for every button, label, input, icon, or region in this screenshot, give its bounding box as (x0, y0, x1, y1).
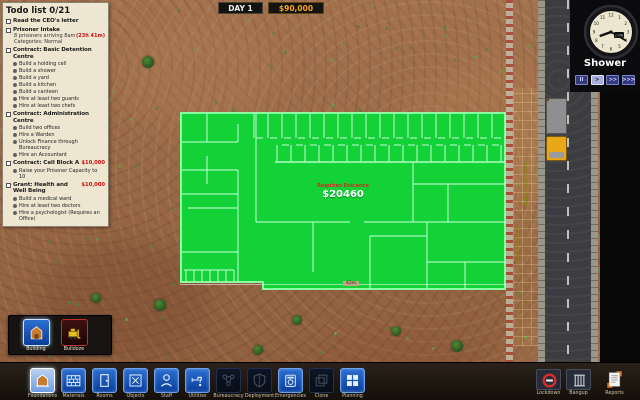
svg-text:8: 8 (595, 38, 598, 43)
todo-checkbox[interactable] (6, 183, 11, 188)
grass-tuft (215, 101, 218, 104)
tree (253, 345, 263, 355)
todo-item-label: Grant: Health and Well Being (13, 182, 81, 195)
tree (292, 315, 302, 325)
map-button-bangup[interactable] (566, 369, 591, 390)
todo-checkbox[interactable] (6, 112, 11, 117)
todo-subitem-bullet (13, 126, 17, 130)
deliveries-zone: DELIVERIES GARBAGE (513, 88, 539, 346)
submenu-label-bulldoze: Bulldoze (54, 347, 94, 352)
todo-subitem: Build a kitchen (13, 82, 105, 88)
todo-item[interactable]: Contract: Cell Block A$10,000Raise your … (6, 160, 105, 180)
svg-text:5: 5 (618, 44, 621, 49)
grass-tuft (528, 44, 531, 47)
todo-subitem-bullet (13, 140, 17, 144)
toolbar-button-deployment[interactable] (247, 368, 272, 393)
map-button-label-bangup: Bangup (558, 391, 599, 396)
toolbar-button-bureaucracy[interactable] (216, 368, 241, 393)
toolbar-button-rooms[interactable] (92, 368, 117, 393)
todo-subitem: Hire at least two chefs (13, 103, 105, 109)
todo-subitem-label: Unlock Finance through Bureaucracy (19, 139, 105, 151)
todo-subitem: Unlock Finance through Bureaucracy (13, 139, 105, 151)
grass-tuft (423, 33, 426, 36)
submenu-button-building[interactable] (23, 319, 50, 346)
staff-icon (158, 372, 175, 389)
grass-tuft (151, 244, 154, 247)
todo-item[interactable]: Read the CEO's letter (6, 18, 105, 25)
todo-item-detail: Categories: Normal (14, 39, 105, 45)
todo-subitem: Hire a psychologist (Requires an Office) (13, 210, 105, 222)
money-label: $90,000 (279, 4, 313, 13)
svg-text:9: 9 (593, 30, 596, 35)
todo-subitem-label: Hire at least two guards (19, 96, 79, 102)
todo-checkbox[interactable] (6, 28, 11, 33)
truck-crate (547, 99, 549, 101)
grass-tuft (169, 207, 172, 210)
todo-subitem-bullet (13, 197, 17, 201)
grass-tuft (284, 51, 287, 54)
todo-item[interactable]: Prisoner Intake8 prisoners arriving 8am(… (6, 27, 105, 46)
road-centerline (567, 0, 569, 400)
todo-subitem-label: Hire at least two chefs (19, 103, 75, 109)
svg-text:6: 6 (610, 47, 613, 52)
todo-subitem-bullet (13, 97, 17, 101)
speed-button-0[interactable]: II (575, 75, 588, 85)
toolbar-button-clone[interactable] (309, 368, 334, 393)
svg-text:1: 1 (618, 15, 621, 20)
grass-tuft (85, 237, 88, 240)
deliveries-zone-label: DELIVERIES (523, 160, 529, 206)
toolbar-label-planning: Planning (332, 394, 373, 399)
prison-architect-screen: DELIVERIES GARBAGE Requires Entrance $20… (0, 0, 640, 400)
tree (154, 299, 166, 311)
todo-subitem: Build a holding cell (13, 61, 105, 67)
todo-subitem-label: Build a kitchen (19, 82, 56, 88)
todo-subitem-bullet (13, 83, 17, 87)
toolbar-button-materials[interactable] (61, 368, 86, 393)
speed-button-1[interactable]: > (591, 75, 604, 85)
map-button-lockdown[interactable] (536, 369, 561, 390)
todo-subitem: Build a canteen (13, 89, 105, 95)
selection-width-dimension: 42m (180, 284, 506, 292)
todo-subitem-label: Raise your Prisoner Capacity to 10 (19, 168, 105, 180)
todo-title: Todo list 0/21 (6, 6, 105, 16)
todo-subitem: Build a yard (13, 75, 105, 81)
grass-tuft (330, 59, 333, 62)
todo-subitem: Hire at least two doctors (13, 203, 105, 209)
grass-tuft (155, 107, 158, 110)
toolbar-button-planning[interactable] (340, 368, 365, 393)
planning-icon (344, 372, 361, 389)
todo-item-header: Contract: Cell Block A$10,000 (6, 160, 105, 167)
todo-subitem-label: Build a canteen (19, 89, 58, 95)
todo-subitem-bullet (13, 62, 17, 66)
submenu-button-bulldoze[interactable] (61, 319, 88, 346)
grass-tuft (160, 316, 163, 319)
foundations-submenu: BuildingBulldoze (8, 315, 112, 355)
clock-panel: 123456789101112 8am Shower II>>>>>> (570, 0, 640, 92)
todo-reward: $10,000 (81, 182, 105, 189)
grass-tuft (272, 32, 275, 35)
rooms-icon (96, 372, 113, 389)
grass-tuft (320, 351, 323, 354)
grass-tuft (500, 70, 503, 73)
bureaucracy-icon (220, 372, 237, 389)
grass-tuft (96, 238, 99, 241)
grass-tuft (130, 118, 133, 121)
todo-subitem-label: Hire at least two doctors (19, 203, 80, 209)
foundations-icon (34, 372, 51, 389)
todo-item-label: Contract: Basic Detention Centre (13, 47, 105, 60)
todo-subitem: Raise your Prisoner Capacity to 10 (13, 168, 105, 180)
road-curb-left (538, 0, 545, 400)
truck-cab (546, 136, 567, 161)
tree (451, 340, 463, 352)
todo-item-header: Grant: Health and Well Being$10,000 (6, 182, 105, 195)
todo-detail-text: Categories: Normal (14, 39, 62, 45)
grass-tuft (136, 164, 139, 167)
todo-item-header: Contract: Administration Centre (6, 111, 105, 124)
svg-text:7: 7 (601, 44, 604, 49)
tree (391, 326, 401, 336)
grass-tuft (386, 327, 389, 330)
grass-tuft (111, 91, 114, 94)
grass-tuft (165, 354, 168, 357)
utilities-icon (189, 372, 206, 389)
submenu-label-building: Building (16, 347, 56, 352)
todo-subitem: Hire an Accountant (13, 152, 105, 158)
delivery-truck (546, 98, 567, 162)
grass-tuft (334, 332, 337, 335)
grass-tuft (76, 303, 79, 306)
grass-tuft (395, 47, 398, 50)
grass-tuft (118, 165, 121, 168)
toolbar-button-staff[interactable] (154, 368, 179, 393)
toolbar-button-emergencies[interactable] (278, 368, 303, 393)
grass-tuft (445, 35, 448, 38)
todo-subitem-label: Build a yard (19, 75, 49, 81)
toolbar-button-objects[interactable] (123, 368, 148, 393)
map-button-reports[interactable] (602, 369, 627, 390)
speed-button-2[interactable]: >> (606, 75, 619, 85)
grass-tuft (177, 9, 180, 12)
todo-item-header: Contract: Basic Detention Centre (6, 47, 105, 60)
todo-subitem: Build two offices (13, 125, 105, 131)
todo-item-label: Contract: Administration Centre (13, 111, 105, 124)
todo-subitem-bullet (13, 133, 17, 137)
truck-windshield (549, 152, 564, 158)
materials-icon (65, 372, 82, 389)
todo-subitem-label: Hire a psychologist (Requires an Office) (19, 210, 105, 222)
toolbar-button-foundations[interactable] (30, 368, 55, 393)
grass-tuft (444, 26, 447, 29)
clock-face: 123456789101112 8am (583, 4, 639, 60)
todo-subitem-bullet (13, 90, 17, 94)
reports-icon (606, 371, 623, 388)
selection-width-label: 42m (343, 281, 359, 286)
svg-text:3: 3 (627, 30, 630, 35)
grass-tuft (341, 43, 344, 46)
grass-tuft (247, 18, 250, 21)
grass-tuft (357, 25, 360, 28)
clone-icon (313, 372, 330, 389)
todo-checkbox[interactable] (6, 161, 11, 166)
grass-tuft (474, 56, 477, 59)
grass-tuft (485, 48, 488, 51)
todo-subitem-label: Build two offices (19, 125, 60, 131)
svg-text:10: 10 (594, 21, 600, 26)
map-button-label-reports: Reports (594, 391, 635, 396)
svg-text:12: 12 (608, 13, 614, 18)
selection-cost: $20460 (180, 189, 506, 200)
grass-tuft (332, 104, 335, 107)
todo-subitem-label: Hire an Accountant (19, 152, 67, 158)
todo-item[interactable]: Contract: Basic Detention CentreBuild a … (6, 47, 105, 109)
bangup-icon (571, 372, 588, 389)
todo-subitem-bullet (13, 104, 17, 108)
todo-item[interactable]: Contract: Administration CentreBuild two… (6, 111, 105, 158)
todo-subitem-bullet (13, 69, 17, 73)
todo-subitem: Build a medical ward (13, 196, 105, 202)
todo-subitem-label: Build a holding cell (19, 61, 67, 67)
todo-item-header: Read the CEO's letter (6, 18, 105, 25)
garbage-zone-label: GARBAGE (515, 226, 521, 263)
lockdown-icon (541, 372, 558, 389)
grass-tuft (371, 4, 374, 7)
current-regime-label: Shower (570, 58, 640, 69)
todo-time-warning: (23h 41m) (76, 33, 105, 39)
todo-subitem-bullet (13, 76, 17, 80)
todo-item[interactable]: Grant: Health and Well Being$10,000Build… (6, 182, 105, 222)
todo-checkbox[interactable] (6, 19, 11, 24)
grass-tuft (453, 59, 456, 62)
todo-subitem-label: Build a shower (19, 68, 56, 74)
todo-reward: $10,000 (81, 160, 105, 167)
todo-panel[interactable]: Todo list 0/21 Read the CEO's letterPris… (2, 2, 109, 227)
truck-trailer (546, 98, 567, 134)
todo-item-label: Contract: Cell Block A (13, 160, 79, 167)
toolbar-button-utilities[interactable] (185, 368, 210, 393)
todo-subitem-bullet (13, 211, 17, 215)
grass-tuft (409, 46, 412, 49)
todo-item-label: Read the CEO's letter (13, 18, 78, 25)
todo-subitem: Build a shower (13, 68, 105, 74)
grass-tuft (56, 260, 59, 263)
day-label: DAY 1 (228, 4, 253, 13)
todo-subitem-bullet (13, 169, 17, 173)
grass-tuft (68, 301, 71, 304)
todo-subitem-bullet (13, 204, 17, 208)
tree (142, 56, 154, 68)
todo-subitem-label: Build a medical ward (19, 196, 71, 202)
foundation-plan (180, 112, 506, 290)
todo-checkbox[interactable] (6, 48, 11, 53)
grass-tuft (48, 355, 51, 358)
emergencies-icon (282, 372, 299, 389)
todo-subitem-label: Hire a Warden (19, 132, 55, 138)
todo-subitem-bullet (13, 153, 17, 157)
deployment-icon (251, 372, 268, 389)
bulldoze-icon (66, 324, 83, 341)
grass-tuft (47, 241, 50, 244)
tree (91, 293, 101, 303)
todo-subitem: Hire at least two guards (13, 96, 105, 102)
boundary-fence (506, 0, 513, 400)
foundation-placement-selection[interactable]: Requires Entrance $20460 (180, 112, 506, 290)
grass-tuft (385, 27, 388, 30)
svg-text:2: 2 (624, 21, 627, 26)
money-balance[interactable]: $90,000 (268, 2, 324, 14)
day-counter: DAY 1 (218, 2, 263, 14)
todo-subitem: Hire a Warden (13, 132, 105, 138)
svg-text:11: 11 (600, 15, 606, 20)
building-icon (28, 324, 45, 341)
objects-icon (127, 372, 144, 389)
speed-button-3[interactable]: >>> (622, 75, 635, 85)
